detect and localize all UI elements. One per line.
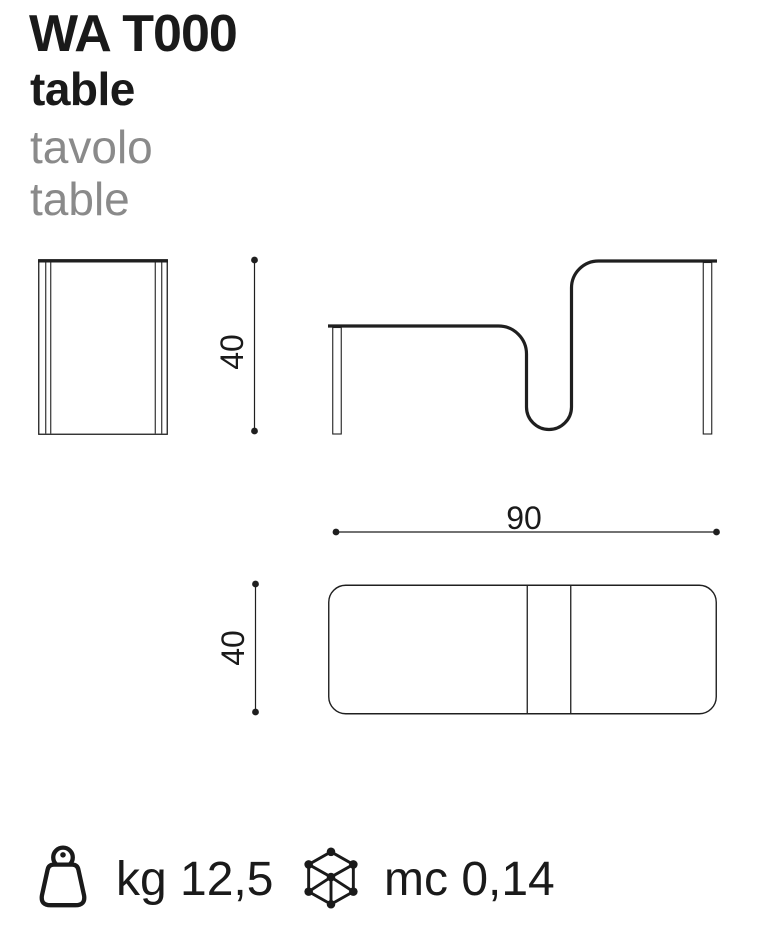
width-dimension-value: 90	[492, 502, 556, 534]
weight-icon	[26, 842, 100, 916]
side-view-drawing	[38, 260, 168, 435]
height-dimension-value: 40	[216, 320, 248, 384]
cube-icon	[296, 845, 366, 913]
height-dimension-line	[251, 257, 258, 435]
front-left-leg	[333, 328, 342, 435]
volume-spec: mc 0,14	[296, 845, 555, 913]
front-right-leg	[703, 263, 712, 435]
volume-value: mc 0,14	[384, 852, 555, 907]
front-view-drawing	[328, 261, 717, 434]
wave-top-profile	[328, 261, 717, 430]
technical-drawings	[0, 0, 771, 941]
weight-value: kg 12,5	[116, 852, 273, 907]
product-spec-sheet: WA T000 table tavolo table	[0, 0, 771, 941]
depth-dimension-line	[252, 581, 259, 716]
depth-dimension-value: 40	[217, 616, 249, 680]
top-view-drawing	[329, 585, 717, 714]
weight-spec: kg 12,5	[26, 842, 273, 916]
